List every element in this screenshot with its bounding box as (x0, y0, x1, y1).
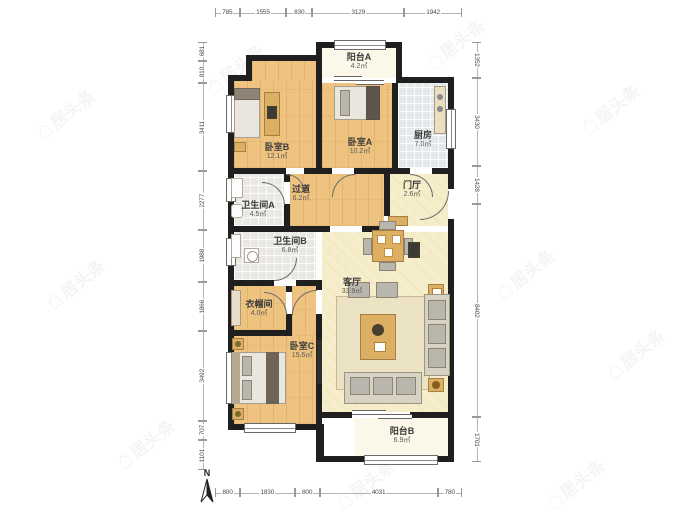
watermark: ⌂居头条 (39, 252, 109, 315)
room-label-cloakroom: 衣帽间4.0㎡ (245, 299, 272, 319)
dimension: 1830 (240, 488, 295, 497)
window (364, 455, 438, 465)
side-table-decor (432, 381, 440, 389)
dining-chair (379, 262, 396, 271)
bed-headboard (232, 352, 240, 404)
dimension: 800 (295, 488, 320, 497)
sofa-cushion (396, 377, 416, 395)
room-label-balcony-b: 阳台B6.9㎡ (390, 426, 415, 446)
room-label-foyer: 门厅2.6㎡ (403, 180, 421, 200)
dimension: 1428 (472, 166, 481, 204)
dimension: 3430 (472, 78, 481, 166)
armchair (376, 282, 398, 298)
dimension: 1555 (240, 8, 287, 17)
dimension: 780 (438, 488, 462, 497)
bed-blanket (366, 86, 380, 120)
dimension: 4031 (320, 488, 438, 497)
dimension: 1942 (404, 8, 462, 17)
coffee-table (360, 314, 396, 360)
sofa-cushion (373, 377, 393, 395)
dimension: 1866 (198, 282, 207, 331)
dimension: 1101 (198, 440, 207, 470)
lamp (235, 411, 241, 417)
bed-pillow (340, 90, 350, 116)
dining-chair (363, 238, 372, 255)
dimension: 707 (198, 421, 207, 441)
room-label-bedroom-b: 卧室B12.1㎡ (265, 142, 290, 162)
dimension: 785 (215, 8, 240, 17)
bed-pillow (242, 380, 252, 400)
dimension: 1352 (472, 42, 481, 78)
sofa-cushion (428, 300, 446, 320)
coffee-table-decor (372, 324, 384, 336)
dimension: 3411 (198, 83, 207, 171)
wardrobe-door (267, 106, 277, 119)
dimension: 681 (198, 42, 207, 61)
compass: N (196, 468, 218, 509)
compass-needle-icon (198, 478, 216, 504)
bed-pillow (234, 88, 260, 100)
vanity (231, 234, 241, 258)
dimension: 830 (286, 8, 312, 17)
watermark: ⌂居头条 (574, 77, 644, 140)
sliding-door (378, 414, 412, 419)
room-label-bath-a: 卫生间A4.5㎡ (241, 200, 275, 220)
room-floor-bedroom-b (252, 61, 316, 83)
window (334, 40, 386, 50)
nightstand (234, 142, 246, 152)
dimension-col-left: 681 810 3411 2277 1988 1866 3492 707 110… (198, 42, 207, 470)
window (446, 109, 456, 149)
room-label-living: 客厅33.9㎡ (342, 277, 363, 297)
bed-blanket (266, 352, 279, 404)
sofa-cushion (428, 324, 446, 344)
room-label-bedroom-c: 卧室C15.6㎡ (290, 341, 315, 361)
washbasin (231, 178, 243, 198)
dimension-row-bottom: 800 1830 800 4031 780 (215, 488, 462, 497)
dimension: 8402 (472, 204, 481, 417)
watermark: ⌂居头条 (489, 242, 559, 305)
room-label-hallway: 过道6.2㎡ (292, 184, 310, 204)
room-label-bedroom-a: 卧室A10.2㎡ (348, 137, 373, 157)
sofa-cushion (350, 377, 370, 395)
closet (231, 290, 241, 326)
place-setting (392, 235, 401, 244)
place-setting (384, 248, 393, 257)
dimension: 3492 (198, 331, 207, 421)
watermark: ⌂居头条 (539, 452, 609, 510)
stove-burner (437, 94, 443, 100)
dimension: 3129 (312, 8, 404, 17)
room-label-kitchen: 厨房7.0㎡ (414, 130, 432, 150)
dining-chair (379, 221, 396, 230)
dimension-row-top: 785 1555 830 3129 1942 (215, 8, 462, 17)
sliding-door (356, 80, 384, 85)
window (244, 423, 296, 433)
room-label-balcony-a: 阳台A4.2㎡ (347, 52, 372, 72)
sink (437, 106, 443, 112)
room-label-bath-b: 卫生间B6.8㎡ (273, 236, 307, 256)
lamp (235, 341, 241, 347)
compass-north-label: N (196, 468, 218, 478)
dimension: 2277 (198, 171, 207, 230)
dimension: 800 (215, 488, 240, 497)
place-setting (377, 235, 386, 244)
coffee-table-tray (374, 342, 386, 352)
dimension: 1988 (198, 230, 207, 282)
dimension: 810 (198, 61, 207, 83)
watermark: ⌂居头条 (29, 82, 99, 145)
dimension-col-right: 1352 3430 1428 8402 1701 (472, 42, 481, 462)
watermark: ⌂居头条 (599, 322, 669, 385)
watermark: ⌂居头条 (109, 412, 179, 475)
floorplan-canvas: ⌂居头条 ⌂居头条 ⌂居头条 ⌂居头条 ⌂居头条 ⌂居头条 ⌂居头条 ⌂居头条 … (0, 0, 680, 510)
sofa-cushion (428, 348, 446, 368)
dimension: 1701 (472, 417, 481, 462)
tv (317, 340, 322, 384)
sideboard (408, 242, 420, 258)
bed-pillow (242, 356, 252, 376)
washer-drum (247, 251, 258, 262)
